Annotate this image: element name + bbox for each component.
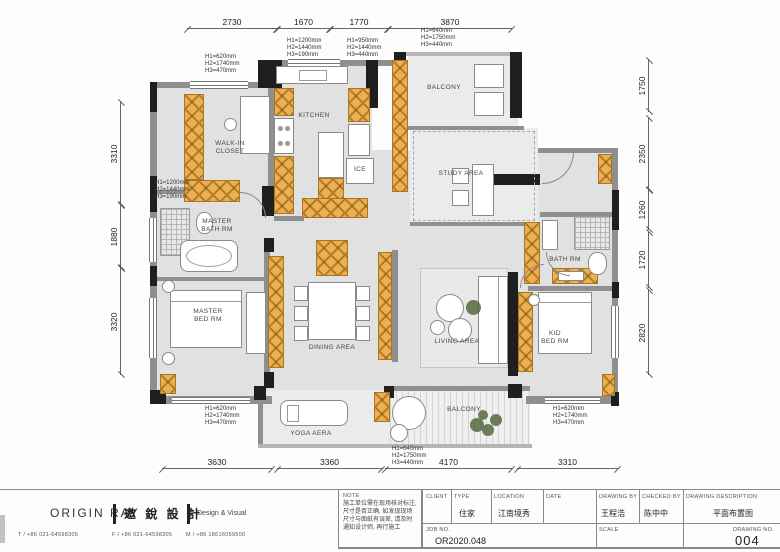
rattan-ottoman: [390, 424, 408, 442]
kitchen-sink-counter: [276, 66, 348, 84]
kitchen-counter-right: [348, 124, 370, 156]
dimension-top: 1670: [277, 28, 330, 29]
title-block: ORIGIN RAY 邀 銳 設 計 Design & Visual T / +…: [0, 488, 780, 552]
dining-chair: [294, 326, 308, 341]
cabinet-yoga: [374, 392, 390, 422]
location-value: 江南境秀: [498, 508, 530, 519]
sofa: [478, 276, 508, 364]
wall-bath-bed-divider: [157, 277, 270, 281]
location-label: LOCATION: [494, 494, 524, 500]
table-rule: [423, 523, 780, 524]
wall-black: [508, 384, 522, 398]
closet-stool: [224, 118, 237, 131]
master-bed-pillows: [171, 291, 241, 302]
dimension-value: 3310: [517, 457, 618, 467]
window-kid-bottom: [545, 397, 600, 404]
wall-black: [150, 82, 157, 112]
dining-chair: [356, 306, 370, 321]
kid-stool: [528, 294, 540, 306]
bathtub: [180, 240, 238, 272]
study-chair: [452, 190, 469, 206]
dimension-value: 1260: [637, 201, 647, 220]
dimension-value: 1750: [637, 77, 647, 96]
checked-by-label: CHECKED BY: [642, 494, 681, 500]
description-value: 平面布置图: [713, 508, 753, 519]
kitchen-island: [318, 132, 344, 178]
window-masterbed-bottom: [172, 397, 250, 404]
side-table: [430, 320, 445, 335]
cabinet-hall-row: [302, 198, 368, 218]
wall-black: [150, 266, 157, 286]
dimension-bottom: 4170: [385, 468, 512, 469]
wall-black: [264, 372, 274, 388]
wall-black: [612, 190, 619, 230]
job-no-label: JOB NO.: [426, 527, 450, 533]
master-nightstand: [162, 352, 175, 365]
label-bath: BATH RM: [548, 256, 582, 264]
contact-fax: F / +86 021-64598305: [112, 532, 172, 538]
cabinet-kitchen-right: [348, 88, 370, 122]
table-rule: [639, 490, 640, 523]
logo-divider: [187, 504, 190, 524]
dimension-right: 1260: [648, 190, 649, 230]
dimension-value: 1770: [330, 17, 388, 27]
dimension-value: 1670: [277, 17, 330, 27]
wall-study-top: [408, 126, 524, 130]
cabinet-kid-corner: [602, 374, 615, 396]
dining-table: [308, 282, 356, 340]
label-balcony-bottom: BALCONY: [436, 406, 492, 414]
annotation-window: H1=640mm H2=1750mm H3=440mm: [421, 28, 456, 49]
label-walk-in-closet: WALK-IN CLOSET: [198, 140, 262, 157]
dimension-left: 3320: [120, 268, 121, 375]
bath-sink: [542, 220, 558, 250]
cabinet-kitchen-left-lower: [274, 156, 294, 214]
cabinet-closet-bottom: [184, 180, 240, 202]
type-value: 住家: [459, 508, 475, 519]
titleblock-bottom-rule: [338, 548, 780, 549]
label-kid-bed: KID BED RM: [534, 330, 576, 347]
dimension-value: 3870: [388, 17, 512, 27]
dimension-value: 3310: [109, 144, 119, 163]
scale-label: SCALE: [599, 527, 619, 533]
description-label: DRAWING DESCRIPTION: [686, 494, 757, 500]
annotation-window: H1=1200mm H2=1440mm H3=190mm: [287, 38, 322, 59]
label-kitchen: KITCHEN: [292, 112, 336, 120]
master-dresser: [246, 292, 266, 354]
wall-black: [264, 238, 274, 252]
dimension-value: 2350: [637, 145, 647, 164]
dimension-top: 3870: [388, 28, 512, 29]
type-label: TYPE: [454, 494, 470, 500]
cabinet-tv-wall: [378, 252, 392, 360]
dimension-bottom: 3630: [162, 468, 272, 469]
tv-wall-gray: [392, 250, 398, 362]
balcony-dryer: [474, 92, 504, 116]
brand-sub: Design & Visual: [197, 510, 246, 517]
drawing-no-value: 004: [735, 533, 760, 548]
checked-by-value: 陈中中: [644, 508, 668, 519]
dimension-left: 3310: [120, 102, 121, 205]
dimension-value: 3630: [162, 457, 272, 467]
rail-balcony-top: [394, 52, 522, 56]
floor-plan: WALK-IN CLOSET KITCHEN ICE STUDY AREA BA…: [0, 0, 780, 488]
table-rule: [491, 490, 492, 523]
kid-bed-pillow: [539, 293, 591, 303]
balcony-plant: [482, 424, 494, 436]
window-masterbed-left: [149, 298, 157, 358]
table-rule: [451, 490, 452, 523]
logo-divider: [113, 504, 116, 524]
note-box: NOTE 施工单位需在现场核对标注, 尺寸是否正确, 如发现现场 尺寸与图纸有误…: [338, 489, 422, 548]
cabinet-kitchen-left-upper: [274, 88, 294, 116]
annotation-window: H1=950mm H2=1440mm H3=440mm: [347, 38, 382, 59]
cabinet-tall-study-wall: [392, 60, 408, 192]
label-yoga: YOGA AERA: [284, 430, 338, 438]
job-no-value: OR2020.048: [435, 536, 486, 546]
cabinet-closet-left: [184, 94, 204, 180]
dimension-value: 2820: [637, 323, 647, 342]
dimension-value: 4170: [385, 457, 512, 467]
dimension-value: 1720: [637, 251, 647, 270]
annotation-window: H1=620mm H2=1740mm H3=470mm: [205, 406, 240, 427]
dimension-bottom: 3310: [517, 468, 618, 469]
client-label: CLIENT: [426, 494, 447, 500]
dimension-value: 1880: [109, 227, 119, 246]
wall-black: [510, 52, 522, 118]
shower-bath: [574, 216, 610, 250]
cabinet-masterbed-corner: [160, 374, 176, 394]
cabinet-masterbed-wall: [268, 256, 284, 368]
wall-corridor-study: [410, 222, 538, 226]
dining-chair: [356, 286, 370, 301]
dimension-bottom: 3360: [277, 468, 382, 469]
label-study-area: STUDY AREA: [430, 170, 492, 178]
yoga-mat-block: [287, 405, 299, 422]
dimension-value: 2730: [187, 17, 277, 27]
kitchen-sink: [299, 70, 327, 81]
wall-black: [612, 282, 619, 298]
dimension-top: 2730: [187, 28, 277, 29]
table-rule: [596, 490, 597, 549]
drawing-sheet: WALK-IN CLOSET KITCHEN ICE STUDY AREA BA…: [0, 0, 780, 552]
window-bath-left: [149, 218, 157, 262]
window-closet-top: [190, 81, 248, 89]
cabinet-entry: [598, 154, 612, 184]
date-label: DATE: [546, 494, 561, 500]
fields-table: CLIENT TYPE LOCATION DATE DRAWING BY CHE…: [422, 489, 780, 548]
dimension-value: 3320: [109, 312, 119, 331]
balcony-washer: [474, 64, 504, 88]
label-balcony-top: BALCONY: [416, 84, 472, 92]
sofa-back-line: [498, 277, 499, 363]
dimension-top: 1770: [330, 28, 388, 29]
drawing-by-label: DRAWING BY: [599, 494, 637, 500]
label-master-bath: MASTER BATH RM: [188, 218, 246, 235]
dimension-right: 2820: [648, 290, 649, 375]
toilet-bath: [588, 252, 607, 275]
label-master-bed: MASTER BED RM: [182, 308, 234, 325]
stove: [274, 118, 294, 154]
note-label: NOTE: [343, 493, 421, 499]
dining-chair: [356, 326, 370, 341]
sheet-edge-mark: [0, 515, 5, 543]
contact-mobile: M / +86 18616059500: [186, 532, 245, 538]
dimension-right: 1750: [648, 60, 649, 112]
label-ice: ICE: [347, 166, 373, 174]
bathtub-inner: [186, 245, 232, 267]
contact-tel: T / +86 021-64598305: [18, 532, 78, 538]
dimension-right: 1720: [648, 232, 649, 288]
annotation-window: H1=1200mm H2=1440mm H3=190mm: [155, 180, 190, 201]
wall-black: [254, 386, 266, 400]
drawing-by-value: 王程浩: [601, 508, 625, 519]
label-living: LIVING AREA: [426, 338, 488, 346]
living-plant: [466, 300, 481, 315]
wall-kitchen-bottom: [274, 216, 304, 221]
table-rule: [543, 490, 544, 523]
yoga-mat: [280, 400, 348, 426]
dimension-right: 2350: [648, 118, 649, 190]
wall-right: [612, 148, 618, 404]
wall-black: [508, 272, 518, 376]
cabinet-dining-north: [316, 240, 348, 276]
annotation-window: H1=620mm H2=1740mm H3=470mm: [205, 54, 240, 75]
dimension-left: 1880: [120, 205, 121, 268]
master-nightstand: [162, 280, 175, 293]
note-text: 施工单位需在现场核对标注, 尺寸是否正确, 如发现现场 尺寸与图纸有误差, 请及…: [343, 500, 421, 532]
dining-chair: [294, 306, 308, 321]
annotation-window: H1=620mm H2=1740mm H3=470mm: [553, 406, 588, 427]
table-rule: [683, 490, 684, 549]
balcony-plant: [490, 414, 502, 426]
label-dining: DINING AREA: [302, 344, 362, 352]
window-kid-right: [611, 306, 619, 358]
dining-chair: [294, 286, 308, 301]
dimension-value: 3360: [277, 457, 382, 467]
brand-cn: 邀 銳 設 計: [124, 505, 203, 522]
